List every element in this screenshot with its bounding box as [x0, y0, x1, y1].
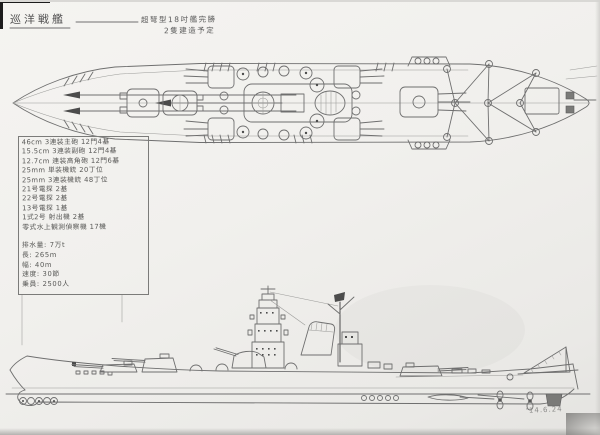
- flag: [334, 292, 345, 302]
- armament-line: 零式水上観測偵察機 17機: [22, 222, 120, 232]
- aircraft-elevator: [525, 88, 559, 114]
- spec-box: 46cm 3連装主砲 12門4基 15.5cm 3連装副砲 12門4基 12.7…: [18, 136, 149, 295]
- page-title: 巡洋戦艦: [10, 11, 66, 28]
- profile-aa-mounts: [190, 363, 297, 371]
- dimension-line: 長: 265m: [22, 251, 70, 261]
- profile-view: [6, 285, 590, 410]
- scan-edge-bottom: [0, 428, 600, 435]
- armament-list: 46cm 3連装主砲 12門4基 15.5cm 3連装副砲 12門4基 12.7…: [22, 138, 120, 233]
- profile-funnel: [301, 322, 335, 355]
- scan-edge-right: [595, 0, 600, 435]
- dimension-line: 乗員: 2500人: [22, 280, 70, 290]
- armament-line: 25mm 3連装機銃 48丁位: [22, 175, 120, 185]
- spec-box-leader-lines: [22, 295, 122, 345]
- stern-portholes: [362, 395, 469, 401]
- profile-forward-turrets: [72, 354, 177, 372]
- dimension-line: 速度: 30節: [22, 270, 70, 280]
- scan-corner-shadow: [566, 413, 600, 435]
- stern-aircraft-deck: [444, 61, 575, 145]
- armament-line: 15.5cm 3連装副砲 12門4基: [22, 147, 120, 157]
- profile-hull-bottom: [18, 389, 574, 406]
- scan-edge-top: [0, 0, 600, 2]
- scanned-drawing-page: 巡洋戦艦 超弩型18吋艦完勝 2隻建造予定 46cm 3連装主砲 12門4基 1…: [0, 0, 600, 435]
- title-annotation-line1: 超弩型18吋艦完勝: [141, 14, 217, 26]
- dimension-list: 排水量: 7万t 長: 265m 幅: 40m 速度: 30節 乗員: 2500…: [22, 241, 70, 290]
- aft-main-turret: [400, 87, 470, 117]
- title-annotation-line2: 2隻建造予定: [164, 25, 215, 36]
- dimension-line: 排水量: 7万t: [22, 241, 70, 251]
- bow-chain-circles: [20, 398, 58, 405]
